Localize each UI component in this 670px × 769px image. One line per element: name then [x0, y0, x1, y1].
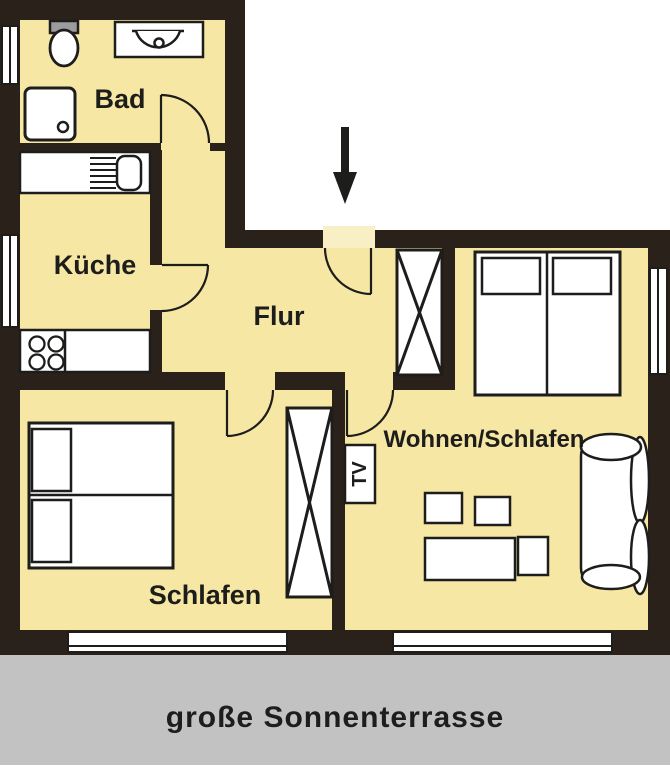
chair [518, 537, 548, 575]
wall-schlafen-wohnen-divider [332, 372, 345, 630]
wall-block-right [225, 0, 245, 248]
wall-flur-wohnen [442, 248, 455, 372]
toilet-bowl [50, 30, 78, 66]
chair [425, 493, 462, 523]
wall-flur-top-left [245, 230, 323, 248]
wall-kueche-right-lower [150, 310, 162, 372]
room-label-schlafen: Schlafen [149, 580, 262, 610]
terrace-door-schlafen [68, 632, 287, 652]
wall-schlafen-top-right [275, 372, 332, 390]
kitchen-sink-counter [20, 152, 150, 193]
pillow [32, 429, 71, 491]
sofa [581, 434, 649, 594]
room-label-flur: Flur [254, 301, 305, 331]
wardrobe-schlafen [287, 408, 332, 597]
pillow [553, 258, 611, 294]
bathroom-sink [115, 22, 203, 57]
wall-flur-top-right [375, 230, 670, 248]
wall-bad-kueche [20, 143, 161, 151]
toilet [50, 21, 78, 66]
terrace-label: große Sonnenterrasse [166, 701, 504, 734]
wall-top [0, 0, 245, 20]
room-label-bad: Bad [94, 84, 145, 114]
tv-label: TV [349, 461, 371, 487]
kitchen-sink-basin [117, 156, 141, 190]
bed-wohnen [475, 252, 620, 395]
floorplan-image: Bad Küche Flur Schlafen Wohnen/Schlafen … [0, 0, 670, 769]
window-kueche-left [2, 235, 18, 327]
sofa-armrest [582, 565, 640, 589]
wardrobe-flur [397, 250, 442, 375]
pillow [32, 500, 71, 562]
bed-schlafen [29, 423, 173, 568]
table [425, 538, 515, 580]
entrance-threshold [323, 226, 375, 248]
stove-counter [20, 330, 150, 372]
chair [475, 497, 510, 525]
sofa-armrest [581, 434, 641, 460]
terrace-door-wohnen [393, 632, 612, 652]
shower [25, 88, 75, 140]
room-label-kueche: Küche [54, 250, 137, 280]
window-bad-left [2, 26, 18, 84]
room-label-wohnen-schlafen: Wohnen/Schlafen [384, 426, 585, 453]
window-wohnen-right [650, 268, 667, 374]
wall-schlafen-top-left [20, 372, 225, 390]
wall-bad-kueche-2 [210, 143, 225, 151]
pillow [482, 258, 540, 294]
wall-kueche-right-upper [150, 150, 162, 265]
